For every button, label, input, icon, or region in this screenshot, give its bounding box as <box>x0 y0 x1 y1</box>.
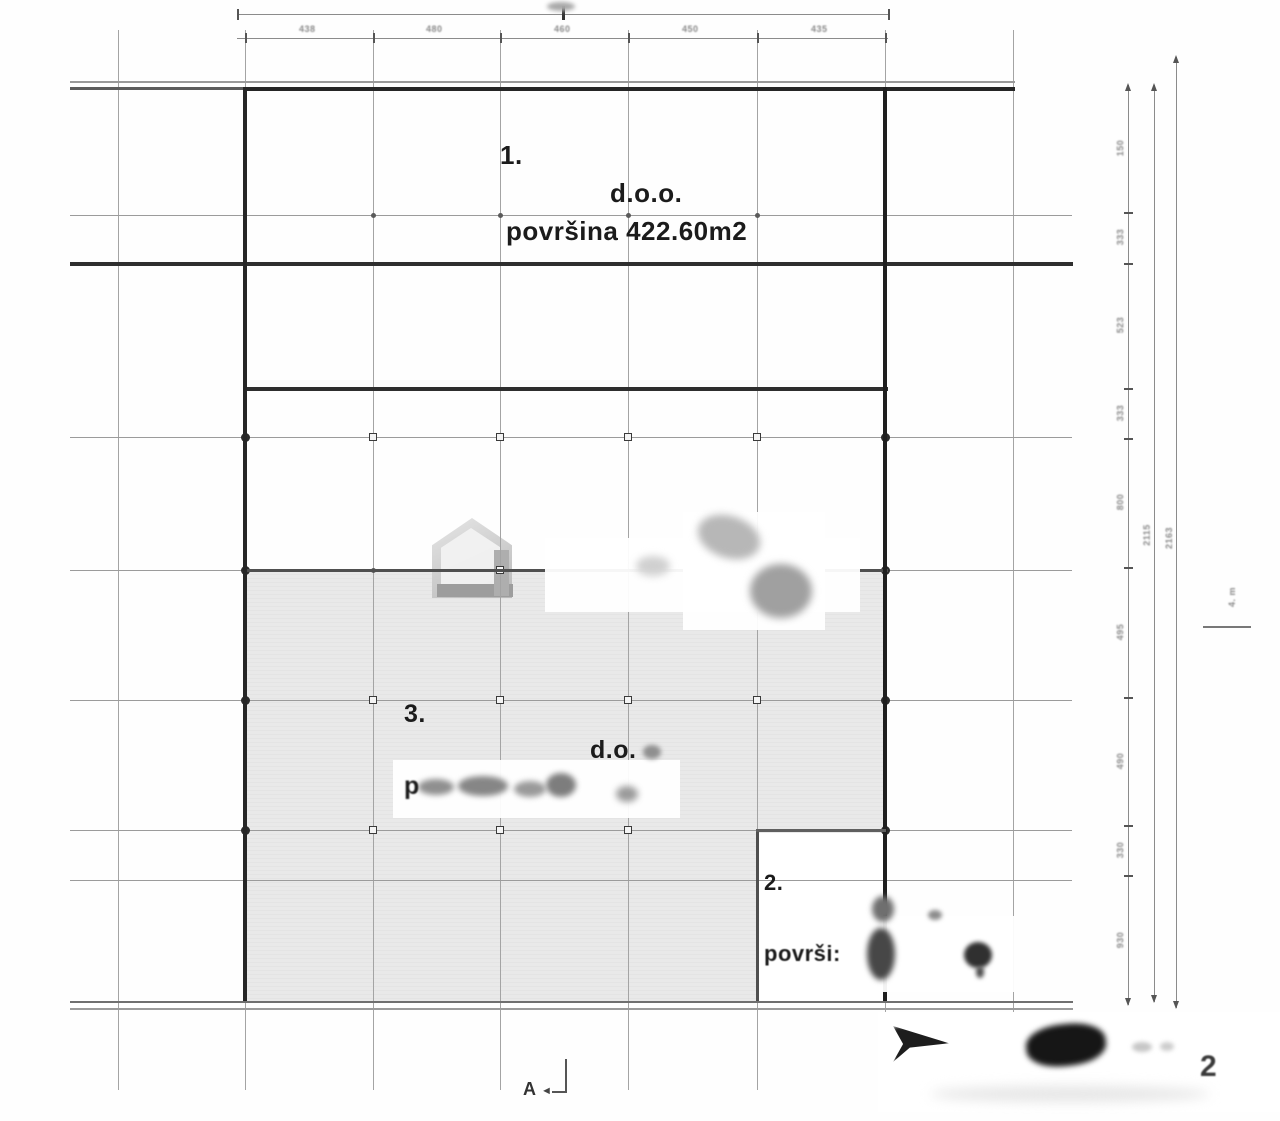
dim-c-arrow-top <box>1173 55 1179 63</box>
dim-right-inner-segment-label: 330 <box>1115 842 1125 859</box>
grid-line-horizontal <box>70 700 1072 701</box>
dim-b-arrow-bottom <box>1151 995 1157 1003</box>
bottom-boundary-line-inner <box>70 1001 1073 1003</box>
wall-vertical-right <box>883 87 887 1003</box>
dim-top-end-tick <box>237 9 239 20</box>
dim-right-outer-total: 2163 <box>1164 527 1174 549</box>
grid-line-vertical <box>373 30 374 1090</box>
section-marker-line-h <box>552 1091 566 1093</box>
dim-top-segment-line <box>237 38 888 39</box>
smudge-unit3-3 <box>514 781 546 797</box>
smudge-unit3-4 <box>546 773 576 797</box>
dim-right-inner-line <box>1128 85 1129 1005</box>
smudge-center-3 <box>636 556 670 576</box>
room2-wall-vertical <box>756 829 759 1003</box>
dim-top-segment-tick <box>885 33 887 43</box>
dim-top-segment-label: 438 <box>299 24 316 34</box>
dim-right-inner-segment-label: 333 <box>1115 405 1125 422</box>
dim-right-inner-tick <box>1124 697 1133 699</box>
grid-node-dot-small <box>755 213 760 218</box>
dim-top-segment-tick <box>757 33 759 43</box>
dim-right-inner-tick <box>1124 825 1133 827</box>
smudge-unit3-5 <box>616 786 638 802</box>
wall-vertical-left <box>243 87 247 1003</box>
unit1-number: 1. <box>500 140 523 171</box>
grid-node-square <box>624 433 632 441</box>
unit1-company: d.o.o. <box>610 178 682 209</box>
dim-right-outer-line <box>1176 57 1177 1008</box>
grid-line-vertical <box>500 30 501 1090</box>
level-mark-line <box>1203 626 1251 628</box>
grid-node-square <box>753 696 761 704</box>
dim-right-middle-line <box>1154 85 1155 1002</box>
dim-right-inner-segment-label: 150 <box>1115 140 1125 157</box>
unit3-number: 3. <box>404 700 426 729</box>
grid-node-square <box>624 826 632 834</box>
house-logo-watermark <box>432 518 514 602</box>
dim-b-arrow-top <box>1151 83 1157 91</box>
smudge-unit2-dark <box>964 942 992 968</box>
dim-right-inner-segment-label: 333 <box>1115 229 1125 246</box>
dim-right-inner-segment-label: 523 <box>1115 317 1125 334</box>
unit1-area: površina 422.60m2 <box>506 216 747 247</box>
smudge-unit2-small <box>928 910 942 920</box>
unit2-area-partial: površi: <box>764 941 841 967</box>
grid-line-horizontal <box>70 437 1072 438</box>
grid-node-dot-small <box>498 213 503 218</box>
smudge-wall-1 <box>872 896 894 922</box>
grid-node-square <box>369 433 377 441</box>
grid-line-horizontal <box>70 880 1072 881</box>
floor-plan-canvas: 4384804604504351503335233338004954903309… <box>0 0 1280 1121</box>
dim-top-end-tick <box>888 9 890 20</box>
grid-line-horizontal <box>70 830 1072 831</box>
grid-node-square <box>496 696 504 704</box>
dim-a-arrow-top <box>1125 83 1131 91</box>
unit3-area-partial: p <box>404 772 420 801</box>
wall-top <box>244 87 1015 91</box>
dim-right-inner-tick <box>1124 263 1133 265</box>
grid-node-square <box>624 696 632 704</box>
dim-right-inner-tick <box>1124 438 1133 440</box>
wall-horizontal-upper <box>70 262 1073 266</box>
grid-node-dot-small <box>371 213 376 218</box>
room2-wall-horizontal <box>756 829 886 832</box>
dim-a-arrow-bottom <box>1125 998 1131 1006</box>
dim-top-segment-label: 435 <box>811 24 828 34</box>
grid-node-square <box>369 696 377 704</box>
dim-top-segment-tick <box>373 33 375 43</box>
grid-node-square <box>369 826 377 834</box>
smudge-stamp-dash-1 <box>1132 1042 1152 1052</box>
dim-right-inner-tick <box>1124 875 1133 877</box>
dim-right-inner-segment-label: 800 <box>1115 494 1125 511</box>
section-marker-line-v <box>565 1059 567 1093</box>
dim-top-segment-label: 460 <box>554 24 571 34</box>
dim-top-segment-tick <box>500 33 502 43</box>
dim-right-inner-segment-label: 490 <box>1115 753 1125 770</box>
dim-top-segment-tick <box>628 33 630 43</box>
dim-c-arrow-bottom <box>1173 1001 1179 1009</box>
dim-right-inner-tick <box>1124 212 1133 214</box>
top-boundary-line-outer <box>70 81 1015 83</box>
dim-top-segment-label: 450 <box>682 24 699 34</box>
bottom-boundary-line-outer <box>70 1008 1073 1010</box>
grid-node-square <box>496 433 504 441</box>
bottom-right-digit: 2 <box>1200 1050 1217 1084</box>
section-marker-letter: A <box>523 1079 537 1100</box>
dim-right-inner-tick <box>1124 388 1133 390</box>
wall-horizontal-middle <box>244 387 888 391</box>
dim-right-inner-tick <box>1124 567 1133 569</box>
smudge-unit3-2 <box>458 776 508 796</box>
smudge-stamp-dash-2 <box>1160 1042 1174 1051</box>
dim-right-inner-segment-label: 930 <box>1115 932 1125 949</box>
smudge-unit2-tail <box>976 966 984 978</box>
grid-line-vertical <box>118 30 119 1090</box>
smudge-top-tick-text <box>547 2 575 11</box>
dim-right-inner-segment-label: 495 <box>1115 624 1125 641</box>
unit3-company: d.o. <box>590 736 636 765</box>
grid-node-square <box>496 826 504 834</box>
smudge-wall-2 <box>867 928 895 980</box>
smudge-center-2 <box>750 564 812 618</box>
unit2-number: 2. <box>764 870 783 896</box>
dim-top-segment-label: 480 <box>426 24 443 34</box>
dim-top-segment-tick <box>245 33 247 43</box>
dim-right-middle-total: 2115 <box>1142 524 1152 546</box>
smudge-after-doo <box>643 745 661 759</box>
section-marker-arrow-icon: ◄ <box>541 1085 552 1097</box>
smudge-unit3-1 <box>418 779 454 795</box>
level-mark-text: 4. m <box>1227 587 1237 607</box>
smudge-stamp-streak <box>930 1086 1210 1102</box>
grid-node-square <box>753 433 761 441</box>
